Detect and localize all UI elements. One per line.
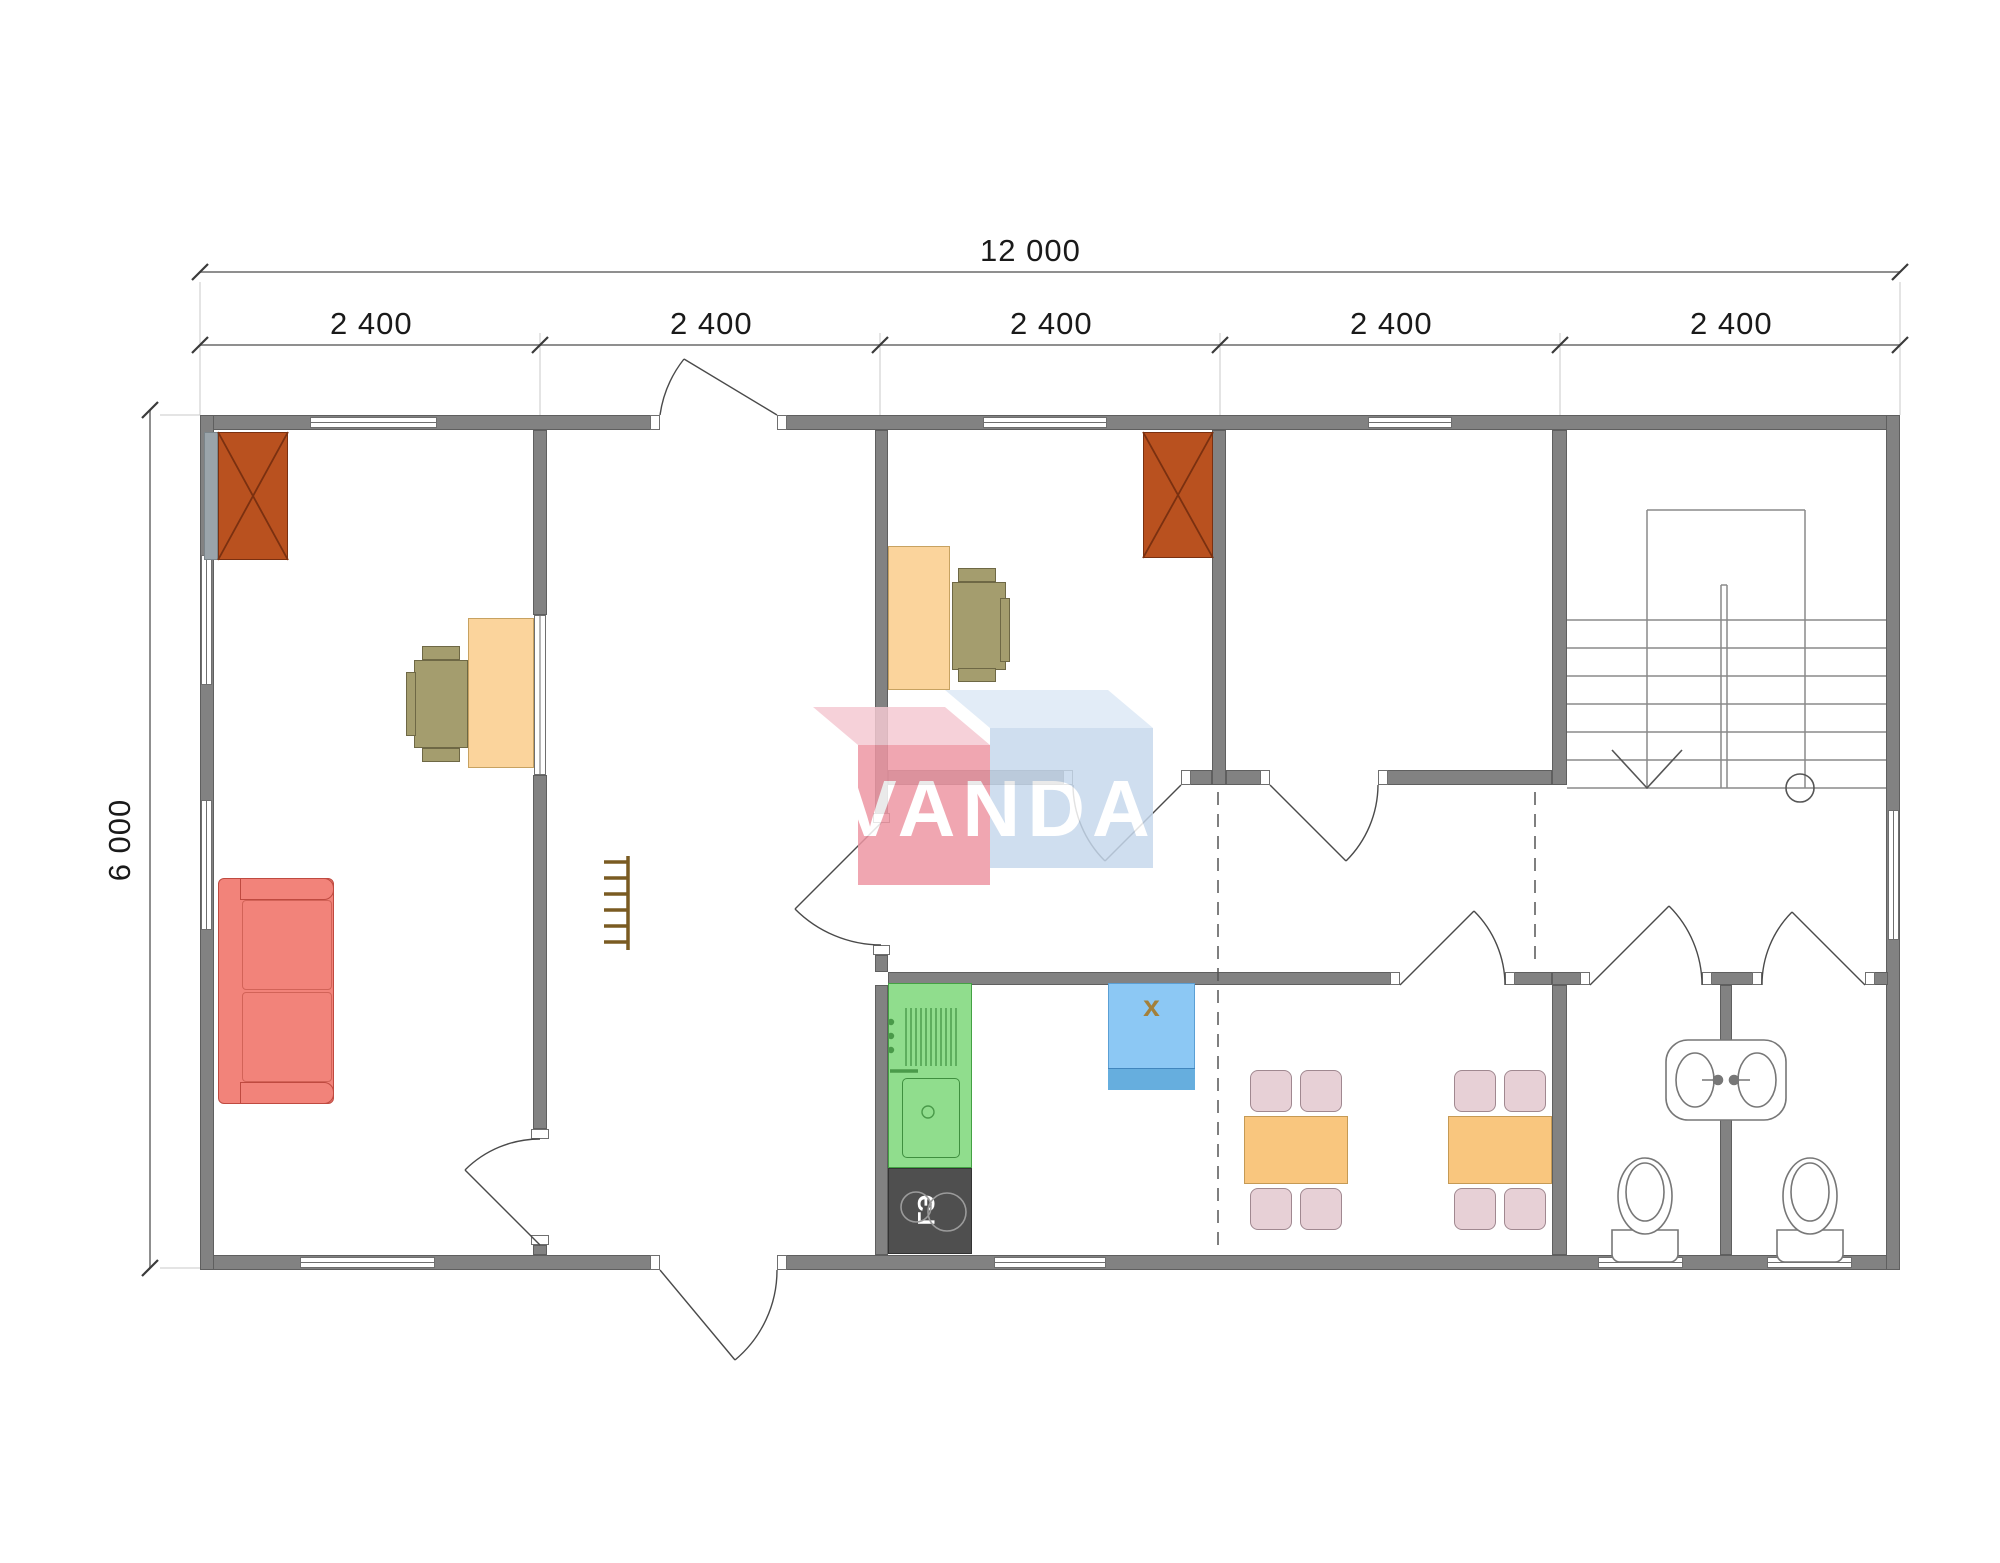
vanda-watermark: VANDA: [0, 0, 2000, 1563]
watermark-blue-box-top: [945, 690, 1153, 728]
floor-plan-canvas: 12 000 2 400 2 400 2 400 2 400 2 400 6 0…: [0, 0, 2000, 1563]
watermark-text: VANDA: [830, 763, 1170, 855]
watermark-red-box-top: [813, 707, 990, 745]
